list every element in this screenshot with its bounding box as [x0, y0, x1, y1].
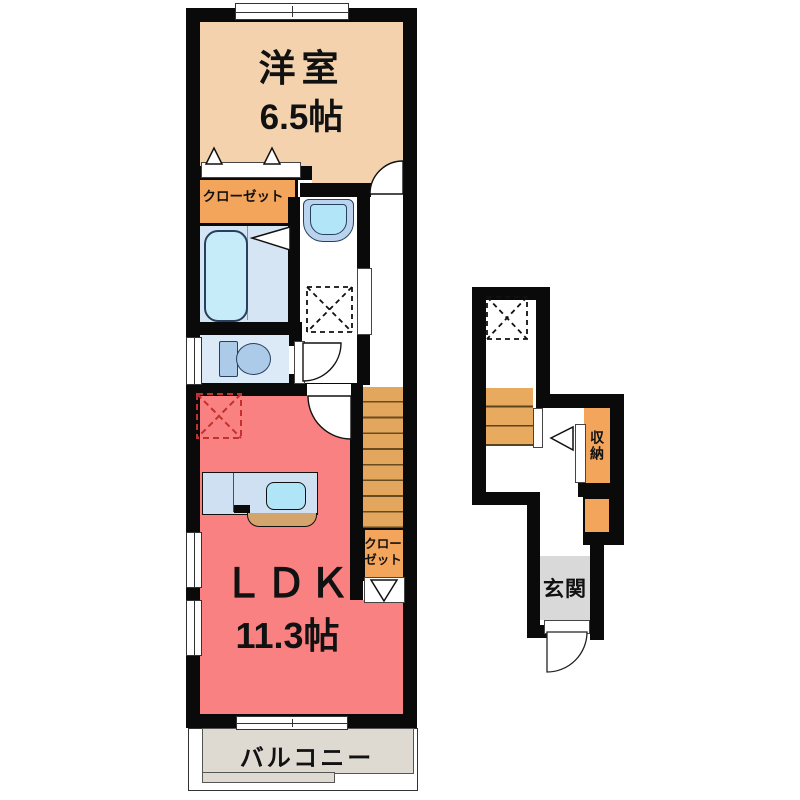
toilet-bowl [236, 343, 271, 375]
storage-label: 収納 [584, 408, 610, 483]
balcony-floor-step [202, 772, 335, 783]
washbasin-bowl [310, 204, 347, 235]
wall [590, 545, 604, 640]
entrance-door-arc [547, 632, 587, 672]
wall [472, 287, 486, 505]
wall [578, 483, 610, 497]
window-line [194, 338, 195, 384]
storage-door-marker [551, 427, 573, 450]
wall [536, 287, 550, 408]
ldk-size-label: 11.3帖 [200, 610, 375, 656]
kitchen-sink [266, 482, 306, 510]
wall [234, 505, 250, 513]
window-tick [292, 6, 293, 17]
stairs-rail-gap [533, 408, 543, 448]
bedroom-size-label: 6.5帖 [200, 92, 403, 136]
entrance-label: 玄関 [540, 556, 590, 620]
wall [527, 492, 540, 638]
wall [357, 333, 370, 385]
wall [583, 532, 624, 545]
toilet-window [186, 337, 202, 385]
kitchen-front-panel [247, 513, 317, 527]
window-line [194, 533, 195, 587]
balcony-label: バルコニー [202, 740, 412, 770]
floor-plan: 洋室 6.5帖 クローゼット ＬＤＫ 11.3帖 クロー ゼット バルコニー 玄… [0, 0, 800, 800]
upper-landing-open-space [487, 297, 527, 339]
entrance-door-sill [544, 620, 590, 634]
stair-closet-label-line1: クロー [364, 537, 402, 553]
bedroom-closet-label: クローゼット [194, 170, 292, 220]
balcony-window [236, 716, 348, 730]
window-line [194, 601, 195, 655]
shoe-cabinet [583, 497, 611, 536]
bedroom-window [235, 3, 349, 20]
wall [610, 394, 624, 545]
bathtub [204, 230, 248, 322]
toilet-door-arc [303, 343, 341, 381]
ldk-label: ＬＤＫ [200, 556, 375, 604]
wall [186, 322, 300, 335]
wall [403, 8, 417, 728]
stairs-to-second-floor [363, 387, 403, 528]
washing-machine-space [307, 287, 352, 332]
window-tick [292, 719, 293, 727]
bedroom-label: 洋室 [200, 42, 403, 88]
bedroom-door-opening [371, 184, 403, 197]
entrance-stairs [486, 388, 533, 446]
ldk-door-opening [307, 384, 351, 396]
bedroom-floor-ext [312, 166, 403, 184]
stair-closet-label: クロー ゼット [363, 530, 403, 575]
toilet-door-leaf [294, 341, 305, 384]
stair-closet-label-line2: ゼット [364, 553, 402, 569]
wall [357, 197, 370, 268]
washroom-sliding-door [357, 268, 372, 335]
